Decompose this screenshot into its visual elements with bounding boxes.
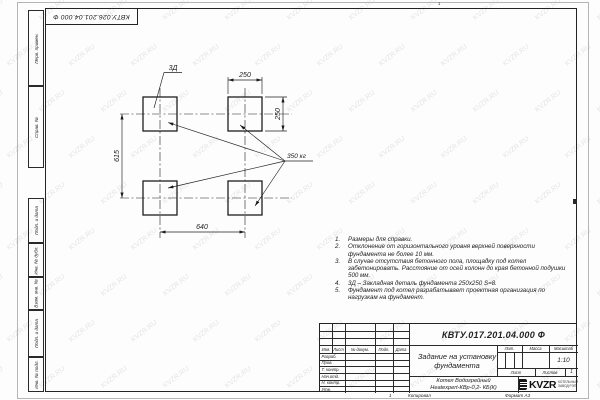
title-block-line — [497, 368, 578, 369]
title-block-line — [535, 368, 536, 376]
title-block: КВТУ.017.201.04.000 Ф Изм. Лист № докум.… — [319, 323, 577, 392]
title-block-line — [514, 352, 515, 368]
note-item: 1.Размеры для справки. — [335, 236, 567, 243]
signature-row-label: Т. контр. — [322, 366, 345, 373]
drawing-sheet: { "watermark": { "text": "KVZR.RU" }, "s… — [0, 0, 600, 400]
header-scale: Масштаб — [549, 345, 578, 352]
note-text: 3Д – Закладная деталь фундамента 250х250… — [344, 280, 567, 287]
scale-value: 1:10 — [549, 352, 578, 368]
embed-label: 3Д — [169, 65, 178, 72]
note-text: Размеры для справки. — [344, 236, 567, 243]
signature-row-label: Пров. — [322, 360, 345, 367]
col-header-list: Лист — [332, 345, 345, 353]
title-block-line — [518, 376, 519, 393]
note-number: 1. — [335, 236, 344, 243]
logo-subtitle-line2: ЗАВОД РЭП — [558, 385, 578, 389]
document-designation: КВТУ.017.201.04.000 Ф — [409, 324, 578, 345]
dim-640-bottom: 640 — [196, 224, 208, 231]
signature-row-label: Н. контр. — [322, 380, 345, 387]
title-block-line — [505, 352, 506, 368]
title-block-line — [565, 368, 566, 376]
title-block-line — [320, 380, 409, 381]
dim-615-left: 615 — [114, 150, 121, 162]
note-item: 5.Фундамент под котел разрабатывает прое… — [335, 287, 567, 302]
title-block-line — [320, 360, 409, 361]
header-sheets: Листов — [535, 368, 565, 376]
title-block-line — [320, 345, 578, 346]
title-block-line — [320, 366, 409, 367]
title-block-line — [320, 386, 409, 387]
manufacturer-logo: KVZR КОТЕЛЬНЫЙ ЗАВОД РЭП — [518, 376, 578, 393]
title-block-line — [320, 373, 409, 374]
title-block-line — [522, 345, 523, 368]
note-number: 4. — [335, 280, 344, 287]
title-block-line — [375, 324, 376, 393]
title-block-line — [409, 376, 578, 377]
note-item: 3.В случае отсутствия бетонного пола, пл… — [335, 258, 567, 280]
title-block-line — [549, 345, 550, 368]
title-block-line — [320, 331, 409, 332]
title-block-line — [409, 324, 410, 393]
signature-row-label: Разраб. — [322, 353, 345, 360]
title-block-line — [320, 353, 409, 354]
dim-250-top: 250 — [238, 72, 251, 79]
product-name: Котел Водогрейный Heatexpert-КВр-0,2- КБ… — [409, 376, 518, 393]
col-header-izm: Изм. — [320, 345, 332, 353]
signature-row-label: Нач.отд. — [322, 373, 345, 380]
note-text: Фундамент под котел разрабатывает проект… — [344, 287, 567, 302]
notes-list: 1.Размеры для справки.2.Отклонение от го… — [335, 236, 567, 302]
note-number: 5. — [335, 287, 344, 302]
product-line1: Котел Водогрейный — [436, 378, 490, 385]
logo-subtitle: КОТЕЛЬНЫЙ ЗАВОД РЭП — [558, 381, 578, 389]
col-header-date: Дата — [393, 345, 409, 353]
header-lit: Лит. — [497, 345, 522, 352]
signature-row-label: Утв. — [322, 386, 345, 393]
kvzr-logo-icon — [518, 379, 527, 390]
col-header-docnum: № докум. — [345, 345, 375, 353]
embed-leader — [154, 73, 182, 109]
note-number: 3. — [335, 258, 344, 280]
note-item: 2.Отклонение от горизонтального уровня в… — [335, 243, 567, 258]
note-text: В случае отсутствия бетонного пола, площ… — [344, 258, 567, 280]
dim-250-right: 250 — [275, 108, 282, 121]
load-leaders — [168, 123, 313, 207]
header-mass: Масса — [522, 345, 549, 352]
title-block-line — [345, 324, 346, 393]
title-block-line — [497, 352, 578, 353]
header-sheet: Лист — [497, 368, 535, 376]
product-line2: Heatexpert-КВр-0,2- КБ(К) — [430, 385, 496, 392]
note-text: Отклонение от горизонтального уровня вер… — [344, 243, 567, 258]
note-number: 2. — [335, 243, 344, 258]
load-label: 350 кг — [287, 153, 307, 160]
title-block-line — [320, 338, 409, 339]
document-title: Задание на установку фундамента — [409, 345, 505, 376]
title-block-line — [497, 345, 498, 376]
logo-brand: KVZR — [529, 379, 556, 391]
title-block-line — [393, 324, 394, 393]
sheets-total: 1 — [565, 368, 578, 376]
col-header-podp: Подп. — [375, 345, 393, 353]
note-item: 4.3Д – Закладная деталь фундамента 250х2… — [335, 280, 567, 287]
